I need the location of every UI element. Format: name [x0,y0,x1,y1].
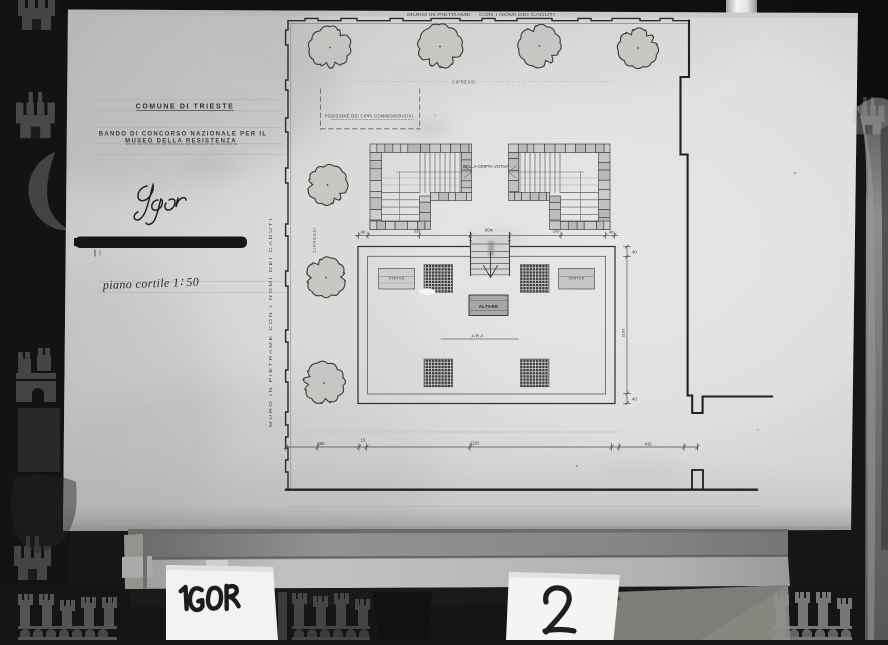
svg-text:MURO IN PIETRAME CON I NOMI DE: MURO IN PIETRAME CON I NOMI DEI CADUTI [268,217,273,427]
svg-text:330: 330 [553,229,561,234]
svg-text:40: 40 [632,250,637,255]
svg-text:MURO IN PIETRAME CON I NOMI D: MURO IN PIETRAME CON I NOMI DEI CADUTI [407,12,555,17]
svg-text:40: 40 [609,230,614,235]
svg-text:ARA: ARA [471,334,484,339]
svg-text:DELLA CRIPTA VOTIVA: DELLA CRIPTA VOTIVA [463,164,509,169]
svg-text:1120: 1120 [470,441,480,446]
svg-text:BANDO DI CONCORSO NAZIONALE PE: BANDO DI CONCORSO NAZIONALE PER IL [99,132,268,138]
svg-text:360: 360 [318,441,326,446]
svg-text:COMUNE DI TRIESTE: COMUNE DI TRIESTE [136,104,235,111]
svg-text:MUSEO DELLA RESISTENZA: MUSEO DELLA RESISTENZA [125,139,237,145]
svg-text:40: 40 [632,397,637,402]
svg-text:1100: 1100 [621,328,626,337]
svg-text:CIPRESSI: CIPRESSI [452,80,476,85]
svg-text:POSIZIONE DEI CIPPI COMMEMORAT: POSIZIONE DEI CIPPI COMMEMORATIVI [325,114,413,119]
svg-text:40: 40 [361,230,366,235]
svg-text:STATUA: STATUA [388,276,404,280]
svg-text:15: 15 [361,438,366,443]
svg-text:STATUA: STATUA [568,276,584,280]
svg-text:410: 410 [645,442,653,447]
svg-text:ALTARE: ALTARE [479,304,499,309]
svg-text:330: 330 [414,229,422,234]
svg-text:CIPRESSI: CIPRESSI [312,227,317,253]
